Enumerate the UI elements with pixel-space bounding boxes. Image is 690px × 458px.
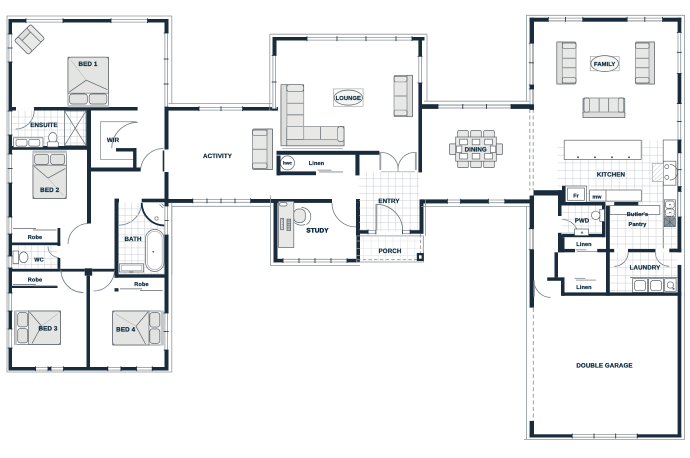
svg-text:Robe: Robe [28, 234, 42, 241]
svg-text:Linen: Linen [309, 160, 325, 167]
svg-text:KITCHEN: KITCHEN [597, 172, 626, 179]
svg-text:mw: mw [592, 194, 602, 200]
svg-text:LOUNGE: LOUNGE [336, 95, 361, 102]
svg-text:hwc: hwc [283, 161, 292, 166]
svg-text:BATH: BATH [124, 236, 142, 243]
svg-text:LAUNDRY: LAUNDRY [630, 265, 661, 272]
svg-text:BED 1: BED 1 [78, 61, 97, 68]
svg-text:Linen: Linen [576, 241, 592, 248]
svg-text:DINING: DINING [465, 147, 487, 154]
svg-text:Butler's: Butler's [627, 211, 648, 218]
svg-text:BED 4: BED 4 [116, 327, 135, 334]
svg-text:ENSUITE: ENSUITE [30, 122, 58, 129]
svg-text:Robe: Robe [134, 281, 148, 288]
svg-text:ACTIVITY: ACTIVITY [203, 153, 233, 160]
svg-text:WC: WC [34, 257, 44, 263]
svg-text:BED 3: BED 3 [38, 326, 57, 333]
svg-text:WIR: WIR [107, 137, 120, 144]
svg-text:Pantry: Pantry [628, 222, 647, 228]
svg-text:Fr: Fr [573, 194, 579, 200]
svg-text:FAMILY: FAMILY [594, 62, 615, 68]
svg-text:Linen: Linen [576, 284, 592, 291]
svg-text:ENTRY: ENTRY [378, 198, 400, 205]
svg-text:DOUBLE GARAGE: DOUBLE GARAGE [576, 362, 632, 369]
svg-text:Robe: Robe [28, 276, 42, 283]
svg-text:PORCH: PORCH [379, 248, 402, 255]
svg-text:PWD: PWD [575, 217, 590, 224]
svg-text:BED 2: BED 2 [40, 187, 59, 194]
svg-text:STUDY: STUDY [306, 228, 329, 235]
